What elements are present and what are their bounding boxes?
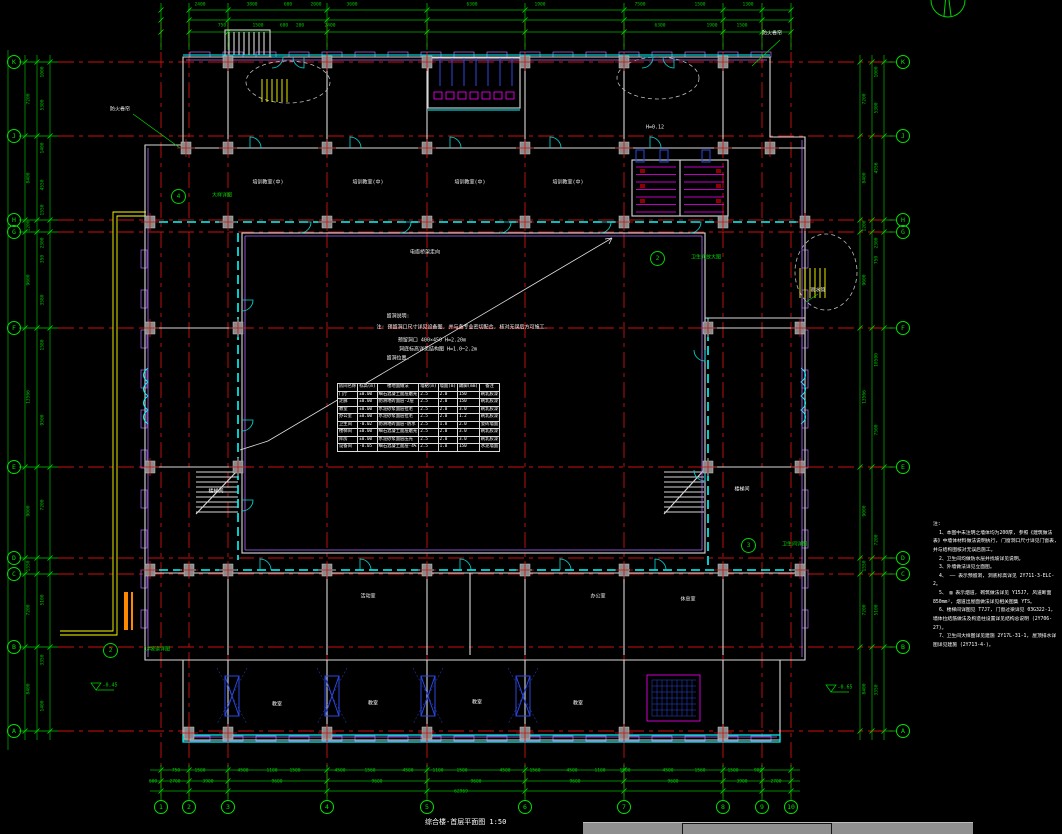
schedule-cell: 刷乳胶漆 bbox=[479, 391, 499, 399]
dim-left_inner: 2300 bbox=[42, 237, 47, 248]
schedule-cell: 细石混凝土面层磨光 bbox=[377, 391, 419, 399]
schedule-cell: 库房 bbox=[338, 436, 358, 444]
dim-top_row2: 1500 bbox=[736, 25, 747, 30]
schedule-cell: 防滑地砖面层-防水 bbox=[377, 421, 419, 429]
dim-bottom_small: 4500 bbox=[237, 770, 248, 775]
schedule-row: 卫生间-0.02防滑地砖面层-防水2.51.82.0瓷砖墙面 bbox=[338, 421, 500, 429]
schedule-row: 库房±0.00水泥砂浆面层压光2.52.03.0刷乳胶漆 bbox=[338, 436, 500, 444]
note-item: 1、本图中未注明之墙体均为200厚, 参照《建筑做法表》中墙体材料做法说明执行,… bbox=[933, 530, 1059, 556]
schedule-cell: ±0.00 bbox=[358, 399, 377, 407]
dim-bottom_seg: 9600 bbox=[569, 781, 580, 786]
plan-label: 活动室 bbox=[360, 595, 375, 600]
dim-left_outer: 13566 bbox=[28, 390, 33, 404]
floor-plan-drawing bbox=[0, 0, 1062, 834]
dim-top_row1: 600 bbox=[284, 4, 292, 9]
schedule-cell: 水泥砂浆面层拉毛 bbox=[377, 414, 419, 422]
dim-bottom_small: 1500 bbox=[194, 770, 205, 775]
schedule-cell: 设备间 bbox=[338, 444, 358, 452]
dim-top_row2: 2400 bbox=[324, 25, 335, 30]
schedule-cell: 150 bbox=[457, 444, 479, 452]
schedule-cell: 教室 bbox=[338, 406, 358, 414]
grid-bubble-A: A bbox=[896, 724, 910, 738]
dim-top_row1: 2000 bbox=[310, 4, 321, 9]
dim-right_inner: 7200 bbox=[864, 93, 869, 104]
dim-bottom_small: 1500 bbox=[289, 770, 300, 775]
dim-bottom_seg: 9600 bbox=[667, 781, 678, 786]
schedule-cell: 2.5 bbox=[419, 436, 438, 444]
schedule-cell: ±0.00 bbox=[358, 391, 377, 399]
plan-label: 雨水管 bbox=[810, 289, 825, 294]
grid-bubble-K: K bbox=[7, 55, 21, 69]
dim-bottom_small: 1100 bbox=[594, 770, 605, 775]
dim-bottom_seg: 3900 bbox=[202, 781, 213, 786]
note-item: 7、卫生间大样图详见建施 2Y17L-31-1, 屋顶排水详图详见建施 (2Y7… bbox=[933, 633, 1059, 650]
grid-bubble-J: J bbox=[896, 129, 910, 143]
schedule-cell: 刷乳胶漆 bbox=[479, 406, 499, 414]
callout-text: 卫生间放大图 bbox=[691, 256, 721, 261]
grid-bubble-1: 1 bbox=[154, 800, 168, 814]
dim-bottom_small: 4500 bbox=[499, 770, 510, 775]
schedule-cell: ±0.00 bbox=[358, 436, 377, 444]
dim-left_inner: 350 bbox=[42, 255, 47, 263]
schedule-row: 走廊±0.00防滑地砖面层-2层2.52.0150刷乳胶漆 bbox=[338, 399, 500, 407]
dim-bottom_small: 4500 bbox=[662, 770, 673, 775]
schedule-header-cell: 墙裙(m) bbox=[419, 384, 438, 392]
plan-label: 防火卷帘 bbox=[110, 108, 130, 113]
grid-bubble-E: E bbox=[7, 460, 21, 474]
schedule-header-cell: 墙面(m) bbox=[438, 384, 457, 392]
schedule-cell: -0.05 bbox=[358, 444, 377, 452]
dim-right_inner: 8400 bbox=[864, 172, 869, 183]
schedule-cell: 150 bbox=[457, 399, 479, 407]
schedule-header-cell: 楼地面做法 bbox=[377, 384, 419, 392]
schedule-cell: 2.0 bbox=[438, 414, 457, 422]
schedule-cell: 150 bbox=[457, 391, 479, 399]
dim-left_outer: 1550 bbox=[28, 560, 33, 571]
plan-label: H=0.12 bbox=[646, 126, 664, 131]
schedule-cell: 3.0 bbox=[457, 406, 479, 414]
room-finish-schedule: 房间名称标高(m)楼地面做法墙裙(m)墙面(m)踢脚(mm)备注门厅±0.00细… bbox=[337, 383, 500, 452]
schedule-cell: 刷乳胶漆 bbox=[479, 414, 499, 422]
dim-right_outer: 7200 bbox=[876, 534, 881, 545]
drawing-title: 综合楼-首层平面图 1:50 bbox=[425, 817, 506, 827]
dim-top_row1: 1300 bbox=[742, 4, 753, 9]
dim-left_outer: 9000 bbox=[28, 505, 33, 516]
dim-left_inner: 9500 bbox=[42, 414, 47, 425]
schedule-cell: 2.0 bbox=[438, 399, 457, 407]
schedule-cell: 楼梯间 bbox=[338, 429, 358, 437]
grid-bubble-G: G bbox=[7, 225, 21, 239]
plan-label: 教室 bbox=[573, 702, 583, 707]
schedule-cell: 卫生间 bbox=[338, 421, 358, 429]
dim-left_inner: 5100 bbox=[42, 594, 47, 605]
note-item: 6、楼梯间详图见 T7J7, 门窗过梁详见 03G322-1, 墙体拉结筋做法及… bbox=[933, 607, 1059, 633]
dim-left_inner: 3580 bbox=[42, 294, 47, 305]
dim-bottom_small: 1500 bbox=[619, 770, 630, 775]
dim-right_outer: 2300 bbox=[876, 237, 881, 248]
dim-top_row2: 200 bbox=[296, 25, 304, 30]
dim-left_inner: 3350 bbox=[42, 654, 47, 665]
plan-label: 教室 bbox=[272, 703, 282, 708]
grid-bubble-4: 4 bbox=[320, 800, 334, 814]
plan-label: 培训教室(中) bbox=[352, 181, 383, 186]
plan-label: 电缆桥架走向 bbox=[410, 251, 440, 256]
schedule-row: 设备间-0.05细石混凝土面层-4%2.51.8150水泥墙面 bbox=[338, 444, 500, 452]
dim-bottom_small: 4500 bbox=[334, 770, 345, 775]
callout-text: 大样详图 bbox=[212, 194, 232, 199]
grid-bubble-5: 5 bbox=[420, 800, 434, 814]
note-item: 4、 —— 表示预留洞, 洞底标高详见 2Y711-3-ELC-2。 bbox=[933, 573, 1059, 590]
dim-left_outer: 7200 bbox=[28, 604, 33, 615]
dim-top_row2: 6300 bbox=[654, 25, 665, 30]
schedule-cell: 2.0 bbox=[438, 391, 457, 399]
notes-items: 1、本图中未注明之墙体均为200厚, 参照《建筑做法表》中墙体材料做法说明执行,… bbox=[933, 530, 1059, 651]
schedule-cell: 2.5 bbox=[419, 391, 438, 399]
callout-bubble: 3 bbox=[741, 538, 756, 553]
grid-bubble-C: C bbox=[7, 567, 21, 581]
dim-bottom_small: 900 bbox=[754, 770, 762, 775]
dim-bottom_seg: 600 bbox=[149, 781, 157, 786]
schedule-cell: 刷乳胶漆 bbox=[479, 399, 499, 407]
grid-bubble-B: B bbox=[896, 640, 910, 654]
stair-core-grid bbox=[652, 680, 696, 716]
dim-top_row1: 3600 bbox=[346, 4, 357, 9]
dim-bottom_small: 4500 bbox=[402, 770, 413, 775]
grid-bubble-G: G bbox=[896, 225, 910, 239]
schedule-row: 门厅±0.00细石混凝土面层磨光2.52.0150刷乳胶漆 bbox=[338, 391, 500, 399]
plan-label: 留洞说明: bbox=[386, 315, 409, 320]
grid-bubble-C: C bbox=[896, 567, 910, 581]
window-titlebar-fragment[interactable] bbox=[583, 822, 973, 834]
dim-right_outer: 3350 bbox=[876, 684, 881, 695]
door-swings bbox=[242, 57, 705, 570]
dim-top_row1: 1900 bbox=[534, 4, 545, 9]
grid-bubble-3: 3 bbox=[221, 800, 235, 814]
schedule-cell: 2.5 bbox=[419, 414, 438, 422]
dim-top_row1: 6300 bbox=[466, 4, 477, 9]
window-titlebar-inner-box[interactable] bbox=[682, 823, 832, 834]
north-arrow-icon bbox=[931, 0, 965, 17]
dim-right_outer: 750 bbox=[876, 256, 881, 264]
plan-label: -0.45 bbox=[102, 684, 117, 689]
dim-top_row1: 1500 bbox=[694, 4, 705, 9]
schedule-row: 办公室±0.00水泥砂浆面层拉毛2.52.01.2刷乳胶漆 bbox=[338, 414, 500, 422]
dim-top_row1: 2400 bbox=[194, 4, 205, 9]
dim-left_inner: 7200 bbox=[42, 499, 47, 510]
general-notes: 注: 1、本图中未注明之墙体均为200厚, 参照《建筑做法表》中墙体材料做法说明… bbox=[933, 521, 1059, 650]
schedule-cell: ±0.00 bbox=[358, 406, 377, 414]
schedule-cell: 1.8 bbox=[438, 444, 457, 452]
plan-label: 教室 bbox=[368, 702, 378, 707]
dim-left_inner: 5300 bbox=[42, 99, 47, 110]
plan-label: 楼梯间 bbox=[208, 490, 223, 495]
plan-label: 培训教室(中) bbox=[552, 181, 583, 186]
dim-right_inner: 13566 bbox=[864, 390, 869, 404]
schedule-cell: 刷乳胶漆 bbox=[479, 429, 499, 437]
plan-label: 办公室 bbox=[590, 595, 605, 600]
dim-bottom_seg: 9600 bbox=[470, 781, 481, 786]
schedule-cell: 2.0 bbox=[457, 421, 479, 429]
schedule-cell: 办公室 bbox=[338, 414, 358, 422]
dim-bottom_small: 4500 bbox=[566, 770, 577, 775]
schedule-cell: 1.2 bbox=[457, 414, 479, 422]
dim-left_outer: 7200 bbox=[28, 93, 33, 104]
plan-label: 洞底标高详见结构图 H=1.0~2.2m bbox=[399, 348, 477, 353]
grid-bubble-F: F bbox=[7, 321, 21, 335]
dim-bottom_small: 1100 bbox=[432, 770, 443, 775]
plan-label: 教室 bbox=[472, 701, 482, 706]
schedule-cell: 瓷砖墙面 bbox=[479, 421, 499, 429]
dim-bottom_seg: 2700 bbox=[169, 781, 180, 786]
schedule-cell: 2.5 bbox=[419, 406, 438, 414]
schedule-cell: 2.5 bbox=[419, 429, 438, 437]
grid-bubble-8: 8 bbox=[716, 800, 730, 814]
plan-label: 留洞位置. bbox=[386, 357, 409, 362]
dim-bottom_small: 1500 bbox=[456, 770, 467, 775]
cad-drawing-canvas: KJHGFEDCBA KJHGFEDCBA 12345678910 240038… bbox=[0, 0, 1062, 834]
schedule-header-cell: 踢脚(mm) bbox=[457, 384, 479, 392]
dim-right_outer: 1000 bbox=[876, 66, 881, 77]
dim-right_inner: 1200 bbox=[864, 220, 869, 231]
schedule-header-cell: 标高(m) bbox=[358, 384, 377, 392]
dim-right_inner: 9000 bbox=[864, 505, 869, 516]
dim-right_inner: 7200 bbox=[864, 604, 869, 615]
note-item: 2、卫生间均做防水层并找坡详见说明。 bbox=[933, 556, 1059, 565]
note-item: 3、外墙做法详见立面图。 bbox=[933, 564, 1059, 573]
dim-top_row1: 7500 bbox=[634, 4, 645, 9]
dim-left_outer: 8400 bbox=[28, 172, 33, 183]
dim-top_row2: 600 bbox=[280, 25, 288, 30]
schedule-cell: 2.0 bbox=[438, 436, 457, 444]
schedule-row: 楼梯间±0.00细石混凝土面层磨光2.52.03.0刷乳胶漆 bbox=[338, 429, 500, 437]
dim-bottom_seg: 9600 bbox=[271, 781, 282, 786]
dim-bottom_small: 750 bbox=[172, 770, 180, 775]
schedule-cell: ±0.00 bbox=[358, 429, 377, 437]
schedule-cell: 3.0 bbox=[457, 429, 479, 437]
dim-top_row2: 1500 bbox=[252, 25, 263, 30]
callout-bubble: 2 bbox=[103, 643, 118, 658]
grid-bubble-D: D bbox=[7, 551, 21, 565]
dim-top_row1: 3800 bbox=[246, 4, 257, 9]
schedule-cell: -0.02 bbox=[358, 421, 377, 429]
dim-right_inner: 8400 bbox=[864, 683, 869, 694]
grid-bubble-10: 10 bbox=[784, 800, 798, 814]
schedule-cell: 2.0 bbox=[438, 429, 457, 437]
dim-right_inner: 9600 bbox=[864, 274, 869, 285]
dim-right_outer: 10500 bbox=[876, 353, 881, 367]
schedule-cell: 走廊 bbox=[338, 399, 358, 407]
callout-text: 卫生间详图 bbox=[782, 543, 807, 548]
note-item: 5、 ▨ 表示烟道, 砌筑做法详见 Y15J7, 风道断面 850mm², 烟道… bbox=[933, 590, 1059, 607]
grid-bubble-J: J bbox=[7, 129, 21, 143]
dim-left_inner: 4550 bbox=[42, 179, 47, 190]
dim-right_outer: 5300 bbox=[876, 102, 881, 113]
dim-left_outer: 9600 bbox=[28, 274, 33, 285]
dim-left_inner: 1550 bbox=[42, 204, 47, 215]
schedule-cell: 防滑地砖面层-2层 bbox=[377, 399, 419, 407]
dim-bottom_small: 1500 bbox=[727, 770, 738, 775]
grid-bubble-B: B bbox=[7, 640, 21, 654]
schedule-header-cell: 备注 bbox=[479, 384, 499, 392]
schedule-cell: 2.5 bbox=[419, 444, 438, 452]
dim-bottom_small: 1560 bbox=[364, 770, 375, 775]
dim-left_inner: 1580 bbox=[42, 339, 47, 350]
schedule-row: 教室±0.00水泥砂浆面层拉毛2.52.03.0刷乳胶漆 bbox=[338, 406, 500, 414]
schedule-cell: ±0.00 bbox=[358, 414, 377, 422]
dim-bottom_small: 1560 bbox=[694, 770, 705, 775]
schedule-cell: 刷乳胶漆 bbox=[479, 436, 499, 444]
dim-bottom_small: 1560 bbox=[529, 770, 540, 775]
schedule-cell: 水泥砂浆面层压光 bbox=[377, 436, 419, 444]
schedule-cell: 水泥墙面 bbox=[479, 444, 499, 452]
dim-bottom_small: 1100 bbox=[266, 770, 277, 775]
dim-left_inner: 1400 bbox=[42, 700, 47, 711]
plan-label: -0.65 bbox=[837, 686, 852, 691]
grid-bubble-F: F bbox=[896, 321, 910, 335]
grid-bubble-2: 2 bbox=[182, 800, 196, 814]
dim-left_outer: 1200 bbox=[28, 220, 33, 231]
schedule-cell: 水泥砂浆面层拉毛 bbox=[377, 406, 419, 414]
dim-right_outer: 5100 bbox=[876, 604, 881, 615]
schedule-header-cell: 房间名称 bbox=[338, 384, 358, 392]
plan-label: 培训教室(中) bbox=[454, 181, 485, 186]
plan-label: 预留洞口 400×450 H=2.20m bbox=[398, 339, 466, 344]
dim-top_row2: 1900 bbox=[706, 25, 717, 30]
dim-right_outer: 4556 bbox=[876, 162, 881, 173]
dim-top_row2: 750 bbox=[218, 25, 226, 30]
plan-label: 培训教室(中) bbox=[252, 181, 283, 186]
callout-text: 1#坡道详图 bbox=[144, 648, 170, 653]
grid-bubble-7: 7 bbox=[617, 800, 631, 814]
grid-bubble-E: E bbox=[896, 460, 910, 474]
dim-left_inner: 1400 bbox=[42, 142, 47, 153]
schedule-cell: 门厅 bbox=[338, 391, 358, 399]
plan-label: 休息室 bbox=[680, 598, 695, 603]
dim-bottom_seg: 3900 bbox=[736, 781, 747, 786]
dim-right_outer: 7500 bbox=[876, 424, 881, 435]
orange-ducts bbox=[124, 592, 133, 630]
schedule-cell: 细石混凝土面层-4% bbox=[377, 444, 419, 452]
schedule-cell: 3.0 bbox=[457, 436, 479, 444]
grid-bubble-D: D bbox=[896, 551, 910, 565]
dim-left_inner: 1000 bbox=[42, 66, 47, 77]
plan-label: 防火卷帘 bbox=[762, 32, 782, 37]
schedule-cell: 细石混凝土面层磨光 bbox=[377, 429, 419, 437]
dim-left_outer: 8400 bbox=[28, 683, 33, 694]
callout-bubble: 4 bbox=[171, 189, 186, 204]
dim-right_inner: 1550 bbox=[864, 560, 869, 571]
plan-label: 楼梯间 bbox=[734, 488, 749, 493]
schedule-cell: 1.8 bbox=[438, 421, 457, 429]
notes-heading: 注: bbox=[933, 521, 1059, 530]
dim-bottom_seg: 9600 bbox=[371, 781, 382, 786]
grid-bubble-A: A bbox=[7, 724, 21, 738]
schedule-cell: 2.5 bbox=[419, 421, 438, 429]
dim-bottom_seg: 2700 bbox=[770, 781, 781, 786]
grid-bubble-9: 9 bbox=[755, 800, 769, 814]
grid-bubble-6: 6 bbox=[518, 800, 532, 814]
schedule-cell: 2.5 bbox=[419, 399, 438, 407]
grid-bubble-K: K bbox=[896, 55, 910, 69]
schedule-cell: 2.0 bbox=[438, 406, 457, 414]
dim-bottom_total: 62969 bbox=[454, 791, 468, 796]
callout-bubble: 2 bbox=[650, 251, 665, 266]
plan-label: 注: 预留洞口尺寸详见设备图, 并与各专业密切配合, 核对无误后方可施工. bbox=[376, 326, 547, 331]
